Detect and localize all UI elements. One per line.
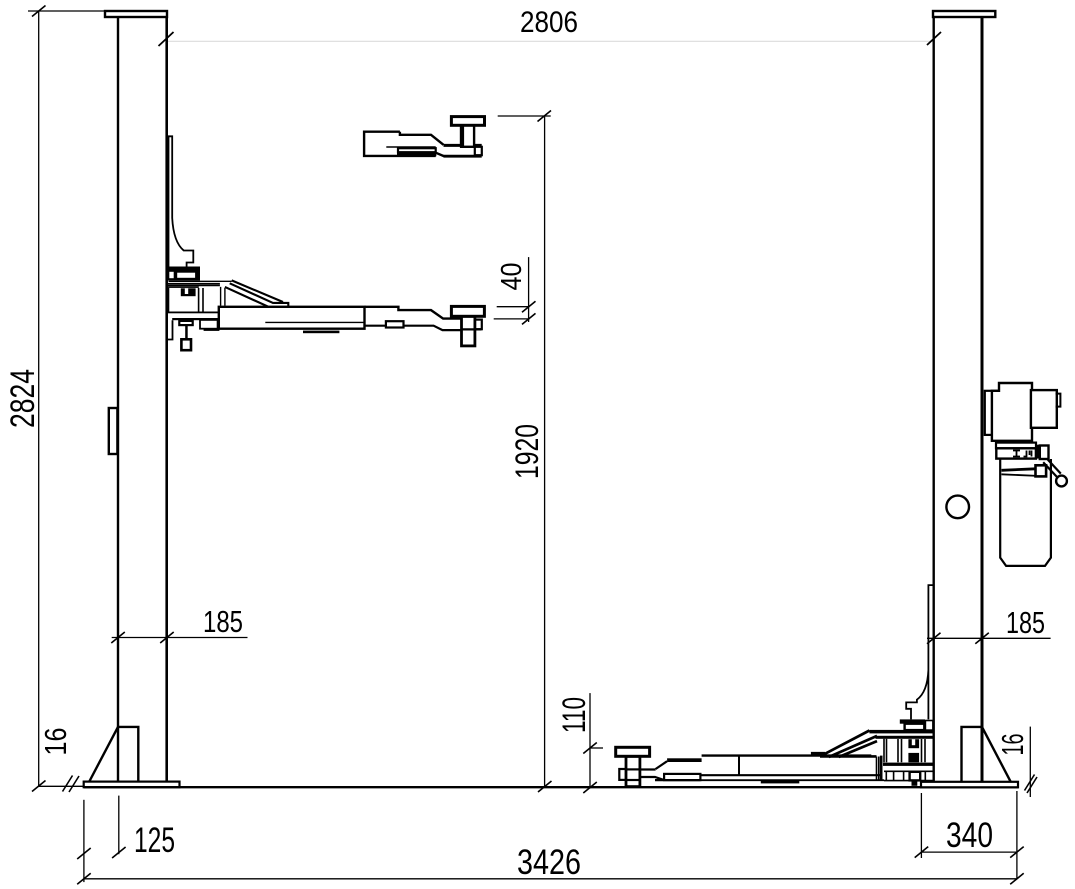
svg-text:40: 40 xyxy=(496,263,528,291)
svg-text:2806: 2806 xyxy=(520,6,578,39)
svg-text:185: 185 xyxy=(1006,605,1045,640)
svg-text:2824: 2824 xyxy=(4,369,42,428)
svg-text:16: 16 xyxy=(995,734,1030,756)
svg-text:125: 125 xyxy=(134,821,175,860)
svg-text:110: 110 xyxy=(556,697,592,733)
svg-text:185: 185 xyxy=(203,604,243,639)
svg-text:1920: 1920 xyxy=(509,424,545,479)
svg-text:3426: 3426 xyxy=(517,843,581,882)
svg-text:340: 340 xyxy=(946,816,993,855)
svg-text:16: 16 xyxy=(38,728,73,756)
